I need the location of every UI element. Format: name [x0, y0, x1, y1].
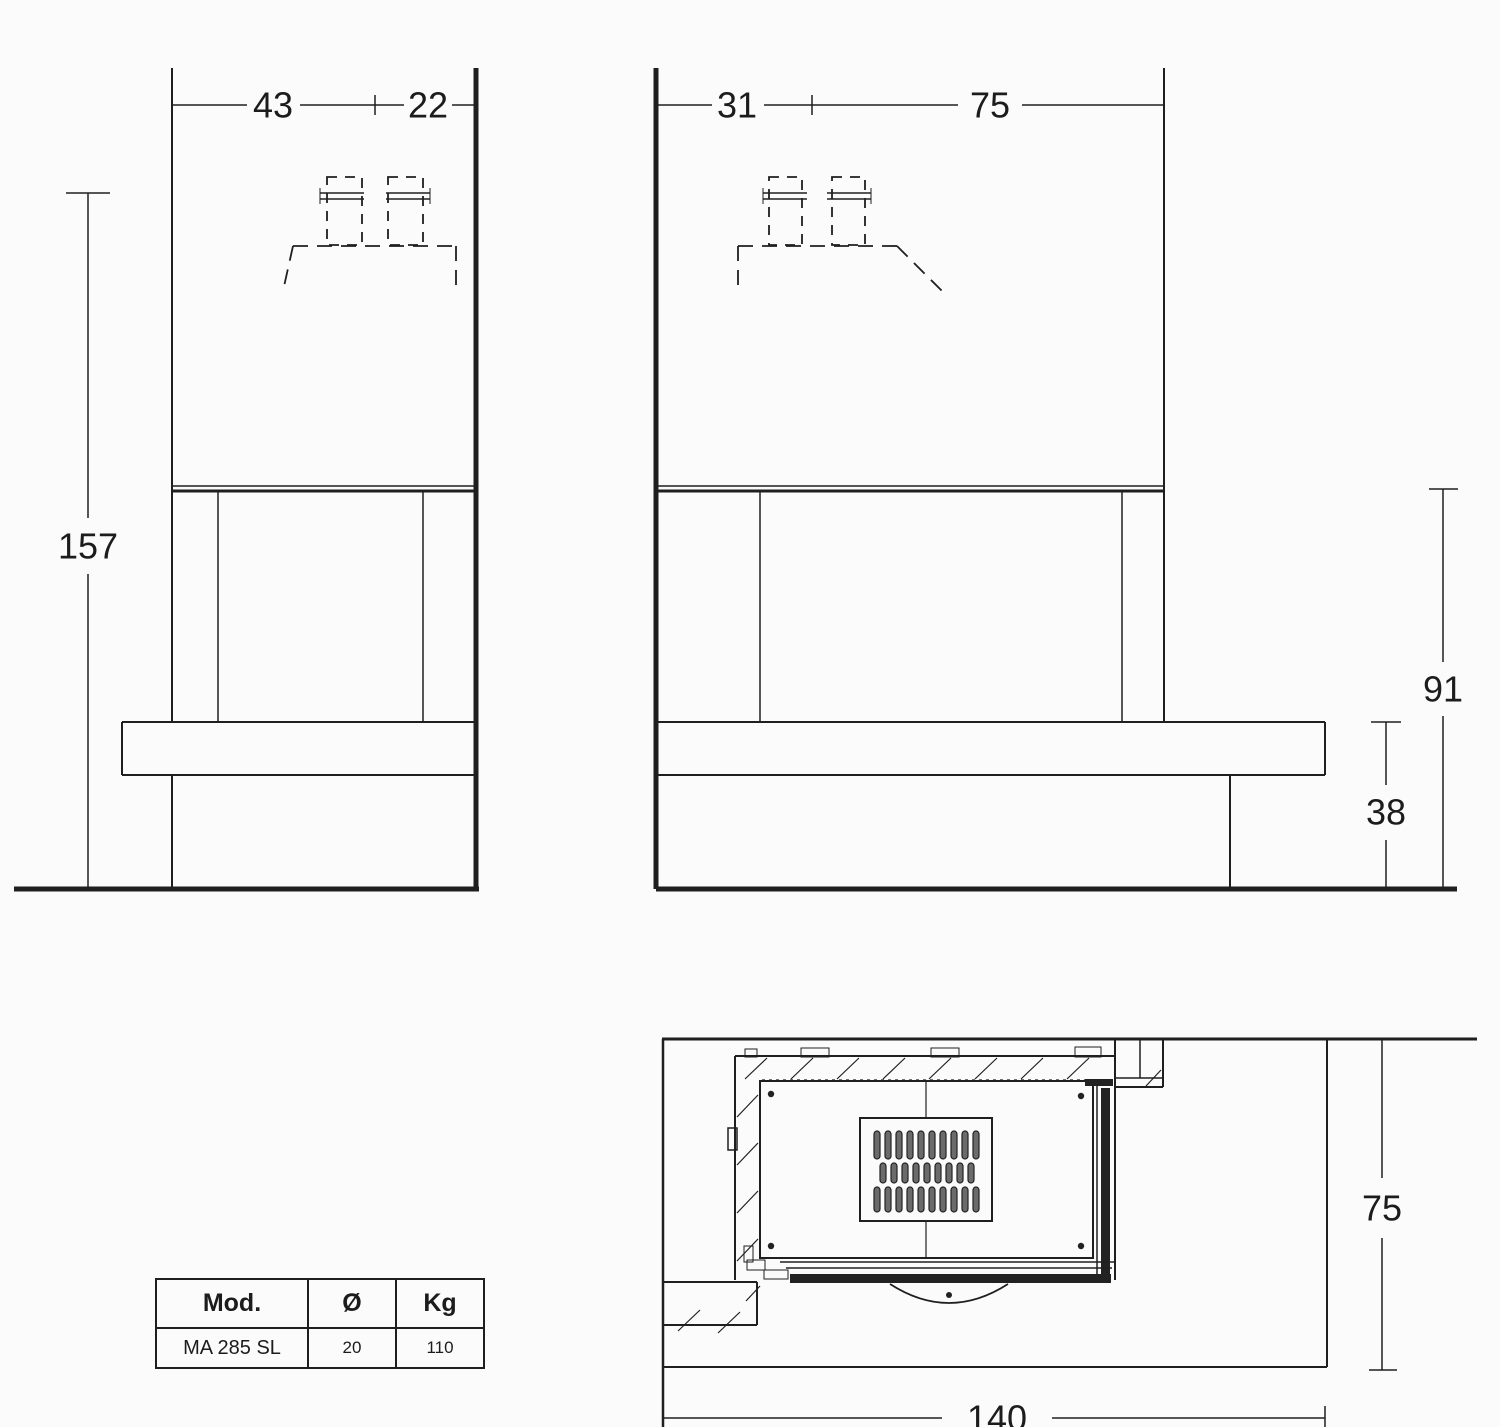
- spec-header-diameter: Ø: [308, 1279, 396, 1328]
- front-hood-dashed-profile: [283, 246, 456, 291]
- grille-slots: [874, 1131, 979, 1212]
- side-view: 31 75 91 38: [656, 68, 1463, 889]
- spec-header-weight: Kg: [396, 1279, 484, 1328]
- front-width-right-label: 22: [408, 85, 448, 126]
- plan-door-assembly: [744, 1246, 1115, 1303]
- plan-left-band-hatch: [737, 1095, 758, 1261]
- front-width-left-label: 43: [253, 85, 293, 126]
- plan-step-bottom-left: [663, 1282, 760, 1333]
- front-flue-collar: [320, 188, 430, 204]
- spec-table-data-row: MA 285 SL 20 110: [156, 1328, 484, 1368]
- side-hood-dashed-profile: [738, 246, 943, 292]
- drawing-sheet: 43 22 157: [0, 0, 1500, 1427]
- spec-header-model: Mod.: [156, 1279, 308, 1328]
- spec-value-weight: 110: [396, 1328, 484, 1368]
- side-opening-height-label: 91: [1423, 669, 1463, 710]
- spec-table-header-row: Mod. Ø Kg: [156, 1279, 484, 1328]
- plan-step-top-right: [1115, 1039, 1163, 1087]
- front-flue-outline: [327, 177, 423, 245]
- plan-depth-label: 75: [1362, 1188, 1402, 1229]
- spec-value-model: MA 285 SL: [156, 1328, 308, 1368]
- plan-width-label: 140: [967, 1398, 1027, 1427]
- plan-top-band-hatch: [745, 1058, 1089, 1079]
- side-mantel-shelf: [656, 722, 1325, 775]
- fireplace-technical-drawing: 43 22 157: [0, 0, 1500, 1427]
- spec-value-diameter: 20: [308, 1328, 396, 1368]
- side-hearth-height-label: 38: [1366, 792, 1406, 833]
- side-flue-collar: [763, 188, 871, 204]
- plan-door-leaf: [790, 1274, 1111, 1283]
- side-flue-outline: [769, 177, 865, 245]
- plan-vent-grille: [860, 1118, 992, 1221]
- plan-view: 75 140: [662, 1039, 1477, 1427]
- spec-table: Mod. Ø Kg MA 285 SL 20 110: [155, 1278, 483, 1369]
- front-height-label: 157: [58, 526, 118, 567]
- front-mantel-shelf: [122, 722, 476, 775]
- plan-door-pivot: [946, 1292, 952, 1298]
- plan-door-jamb-right: [1085, 1039, 1115, 1280]
- side-depth-rear-label: 75: [970, 85, 1010, 126]
- front-view: 43 22 157: [14, 68, 479, 889]
- side-depth-front-label: 31: [717, 85, 757, 126]
